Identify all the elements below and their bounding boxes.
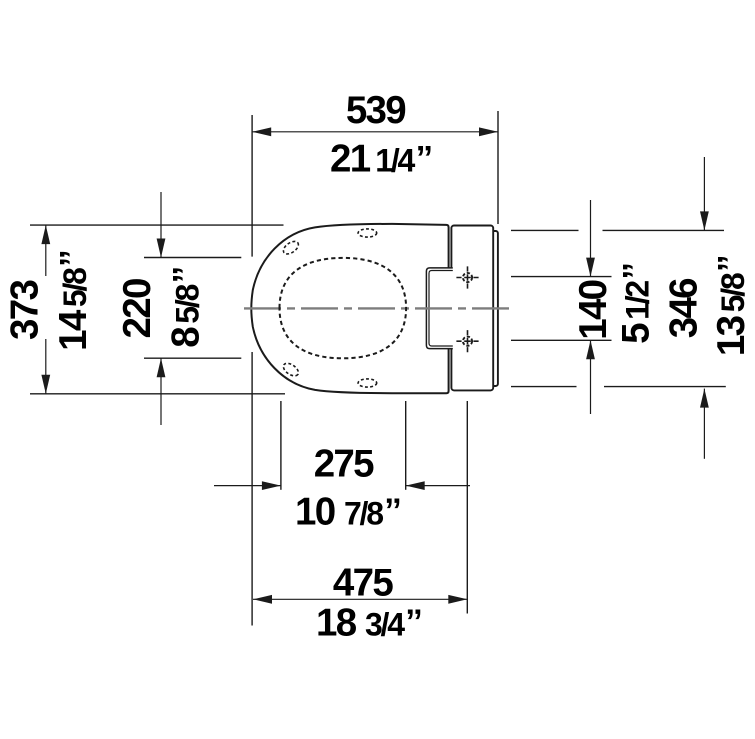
svg-text:475: 475 xyxy=(333,562,393,605)
svg-text:51/2’’: 51/2’’ xyxy=(615,263,658,344)
svg-text:183/4’’: 183/4’’ xyxy=(316,602,422,645)
svg-text:539: 539 xyxy=(346,89,405,132)
svg-text:107/8’’: 107/8’’ xyxy=(295,491,401,534)
svg-text:211/4’’: 211/4’’ xyxy=(330,138,432,181)
svg-text:220: 220 xyxy=(116,279,159,338)
svg-text:140: 140 xyxy=(572,280,615,339)
svg-text:275: 275 xyxy=(314,443,374,486)
svg-text:135/8’’: 135/8’’ xyxy=(710,255,753,356)
svg-text:85/8’’: 85/8’’ xyxy=(165,267,208,348)
svg-text:346: 346 xyxy=(663,278,706,338)
svg-text:373: 373 xyxy=(4,280,47,340)
svg-text:145/8’’: 145/8’’ xyxy=(52,250,95,351)
